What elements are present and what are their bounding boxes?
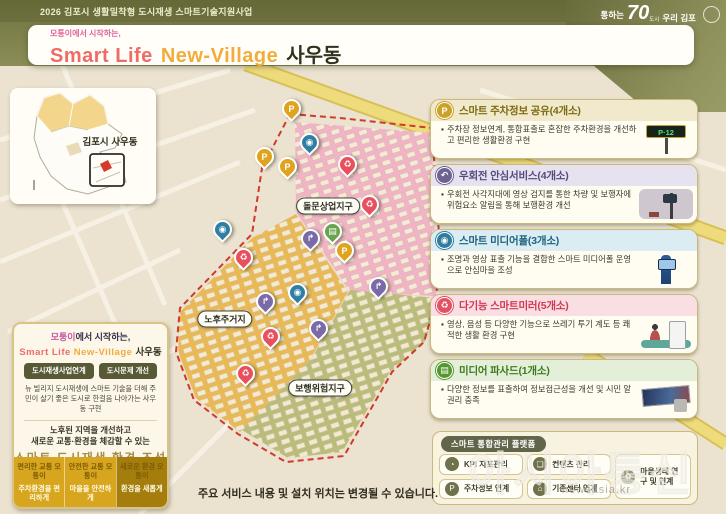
vision-paragraph: 뉴 빌리지 도시재생에 스마트 기술을 더해 주민이 살기 좋은 도시로 한걸음…	[14, 384, 167, 415]
folder-icon: ❏	[533, 457, 547, 471]
region-label: 김포시 사우동	[82, 136, 137, 148]
vision-tile: 안전한 교통 모퉁이마을을 안전하게	[64, 457, 115, 507]
vision-tile-top: 편리한 교통 모퉁이	[14, 462, 64, 481]
vision-badge: 도시문제 개선	[99, 363, 157, 379]
footer-note: 주요 서비스 내용 및 설치 위치는 변경될 수 있습니다.	[168, 485, 468, 501]
vision-subtitle-highlight: 모퉁이	[51, 332, 76, 342]
vision-tile-bottom: 마을을 안전하게	[65, 484, 115, 502]
bullet-icon: ▪	[441, 384, 444, 406]
platform-item-label: 마을생태 연구 및 연계	[640, 467, 685, 486]
title-new-village: New-Village	[161, 45, 278, 68]
title-subtitle: 모퉁이에서 시작하는,	[50, 28, 694, 39]
platform-card: 스마트 통합관리 플랫폼 ◔KPI 지표관리❏컨텐츠 관리P주차정보 연계⌂기존…	[432, 431, 698, 505]
screen-icon: ▤	[436, 362, 453, 379]
service-card-title: 다기능 스마트미러(5개소)	[459, 298, 569, 313]
facade-illustration	[639, 384, 693, 414]
service-card: P스마트 주차정보 공유(4개소)▪주차장 정보연계, 통합표출로 혼잡한 주차…	[430, 99, 698, 159]
service-card-title: 미디어 파사드(1개소)	[459, 363, 550, 378]
platform-item-label: 컨텐츠 관리	[552, 460, 590, 469]
pole-illustration	[639, 254, 693, 284]
service-card-desc-text: 우회전 사각지대에 영상 검지를 통한 차량 및 보행자에 위험요소 알림을 통…	[447, 189, 637, 211]
service-card-desc-text: 다양한 정보를 표출하여 정보접근성을 개선 및 시민 알권리 충족	[447, 384, 637, 406]
cctv-illustration	[639, 189, 693, 219]
vision-title-smart-life: Smart Life	[19, 347, 70, 358]
platform-item: ⌂기존센터 연계	[527, 479, 611, 500]
vision-card: 모퉁이에서 시작하는, Smart Life New-Village 사우동 도…	[12, 322, 169, 509]
building-icon: ⌂	[533, 482, 547, 496]
platform-item: ✿마을생태 연구 및 연계	[615, 454, 691, 499]
bullet-icon: ▪	[441, 254, 444, 276]
gimpo-70-logo: 통하는 70 도시 우리 김포	[601, 3, 697, 24]
platform-item: ◔KPI 지표관리	[439, 454, 523, 475]
service-card-title: 우회전 안심서비스(4개소)	[459, 168, 569, 183]
gauge-icon: ◔	[445, 457, 459, 471]
service-card-desc-text: 주차장 정보연계, 통합표출로 혼잡한 주차환경을 개선하고 편리한 생활환경 …	[447, 124, 637, 146]
platform-item-label: KPI 지표관리	[464, 460, 508, 469]
vision-tile-bottom: 주차환경을 편리하게	[14, 484, 64, 502]
vision-tile-row: 편리한 교통 모퉁이주차환경을 편리하게안전한 교통 모퉁이마을을 안전하게새로…	[14, 457, 167, 507]
service-card: ◉스마트 미디어폴(3개소)▪조명과 영상 표출 기능을 결합한 스마트 미디어…	[430, 229, 698, 289]
service-card: ↶우회전 안심서비스(4개소)▪우회전 사각지대에 영상 검지를 통한 차량 및…	[430, 164, 698, 224]
vision-goal-line-2: 새로운 교통·환경을 체감할 수 있는	[14, 436, 167, 447]
trash-bin-icon: ♻	[436, 297, 453, 314]
parking-illustration	[639, 124, 693, 154]
service-card-title: 스마트 미디어폴(3개소)	[459, 233, 559, 248]
platform-grid: ◔KPI 지표관리❏컨텐츠 관리P주차정보 연계⌂기존센터 연계✿마을생태 연구…	[439, 454, 691, 499]
vision-title-saudong: 사우동	[135, 344, 161, 358]
vision-tile-bottom: 환경을 새롭게	[117, 484, 167, 493]
vision-subtitle-rest: 에서 시작하는,	[76, 332, 131, 342]
main-title: Smart Life New-Village 사우동	[50, 39, 694, 68]
parking-icon: P	[436, 102, 453, 119]
logo-prefix: 통하는	[601, 9, 624, 21]
platform-item: ❏컨텐츠 관리	[527, 454, 611, 475]
vision-title: Smart Life New-Village 사우동	[14, 344, 167, 358]
platform-title-badge: 스마트 통합관리 플랫폼	[441, 436, 546, 452]
bullet-icon: ▪	[441, 189, 444, 211]
service-card-header: ◉스마트 미디어폴(3개소)	[431, 230, 697, 251]
infographic-page: PPPP◉◉◉♻♻♻♻♻↱↱↱↱▤돌문상업지구노후주거지보행위험지구 2026 …	[0, 0, 726, 514]
region-locator-card: 김포시 사우동	[10, 88, 156, 204]
platform-item-label: 기존센터 연계	[552, 484, 597, 493]
logo-number: 70	[627, 3, 649, 23]
vision-tile-top: 새로운 환경 모퉁이	[117, 462, 167, 481]
leaf-icon: ✿	[621, 470, 635, 484]
vision-goal-line-1: 노후된 지역을 개선하고	[14, 425, 167, 436]
service-card-header: ↶우회전 안심서비스(4개소)	[431, 165, 697, 186]
service-card-desc-text: 조명과 영상 표출 기능을 결합한 스마트 미디어폴 운영으로 안심마을 조성	[447, 254, 637, 276]
logo-suffix: 우리 김포	[662, 12, 696, 24]
vision-tile: 편리한 교통 모퉁이주차환경을 편리하게	[14, 457, 64, 507]
service-card-header: P스마트 주차정보 공유(4개소)	[431, 100, 697, 121]
service-card-list: P스마트 주차정보 공유(4개소)▪주차장 정보연계, 통합표출로 혼잡한 주차…	[430, 99, 698, 419]
title-saudong: 사우동	[286, 39, 341, 68]
vision-tile-top: 안전한 교통 모퉁이	[65, 462, 115, 481]
service-card-header: ♻다기능 스마트미러(5개소)	[431, 295, 697, 316]
vision-title-new-village: New-Village	[74, 347, 133, 358]
vision-badge-row: 도시재생사업연계도시문제 개선	[14, 363, 167, 379]
service-card-title: 스마트 주차정보 공유(4개소)	[459, 103, 581, 118]
platform-item-label: 주차정보 연계	[464, 484, 509, 493]
emblem-stamp-icon	[703, 6, 720, 23]
gimpo-outline-map: 김포시 사우동	[10, 88, 156, 204]
logo-inner-text: 도시	[649, 15, 659, 23]
service-card: ▤미디어 파사드(1개소)▪다양한 정보를 표출하여 정보접근성을 개선 및 시…	[430, 359, 698, 419]
bullet-icon: ▪	[441, 319, 444, 341]
service-card-desc-text: 영상, 음성 등 다양한 기능으로 쓰레기 투기 계도 등 쾌적한 생활 환경 …	[447, 319, 637, 341]
vision-tile: 새로운 환경 모퉁이환경을 새롭게	[116, 457, 167, 507]
title-card: 모퉁이에서 시작하는, Smart Life New-Village 사우동	[28, 25, 694, 65]
program-title: 2026 김포시 생활밀착형 도시재생 스마트기술지원사업	[40, 5, 253, 18]
cctv-icon: ◉	[436, 232, 453, 249]
divider	[24, 420, 157, 421]
vision-badge: 도시재생사업연계	[24, 363, 94, 379]
bullet-icon: ▪	[441, 124, 444, 146]
right-turn-arrow-icon: ↶	[436, 167, 453, 184]
vision-subtitle: 모퉁이에서 시작하는,	[14, 330, 167, 343]
title-smart-life: Smart Life	[50, 45, 153, 68]
service-card-header: ▤미디어 파사드(1개소)	[431, 360, 697, 381]
mirror-illustration	[639, 319, 693, 349]
service-card: ♻다기능 스마트미러(5개소)▪영상, 음성 등 다양한 기능으로 쓰레기 투기…	[430, 294, 698, 354]
